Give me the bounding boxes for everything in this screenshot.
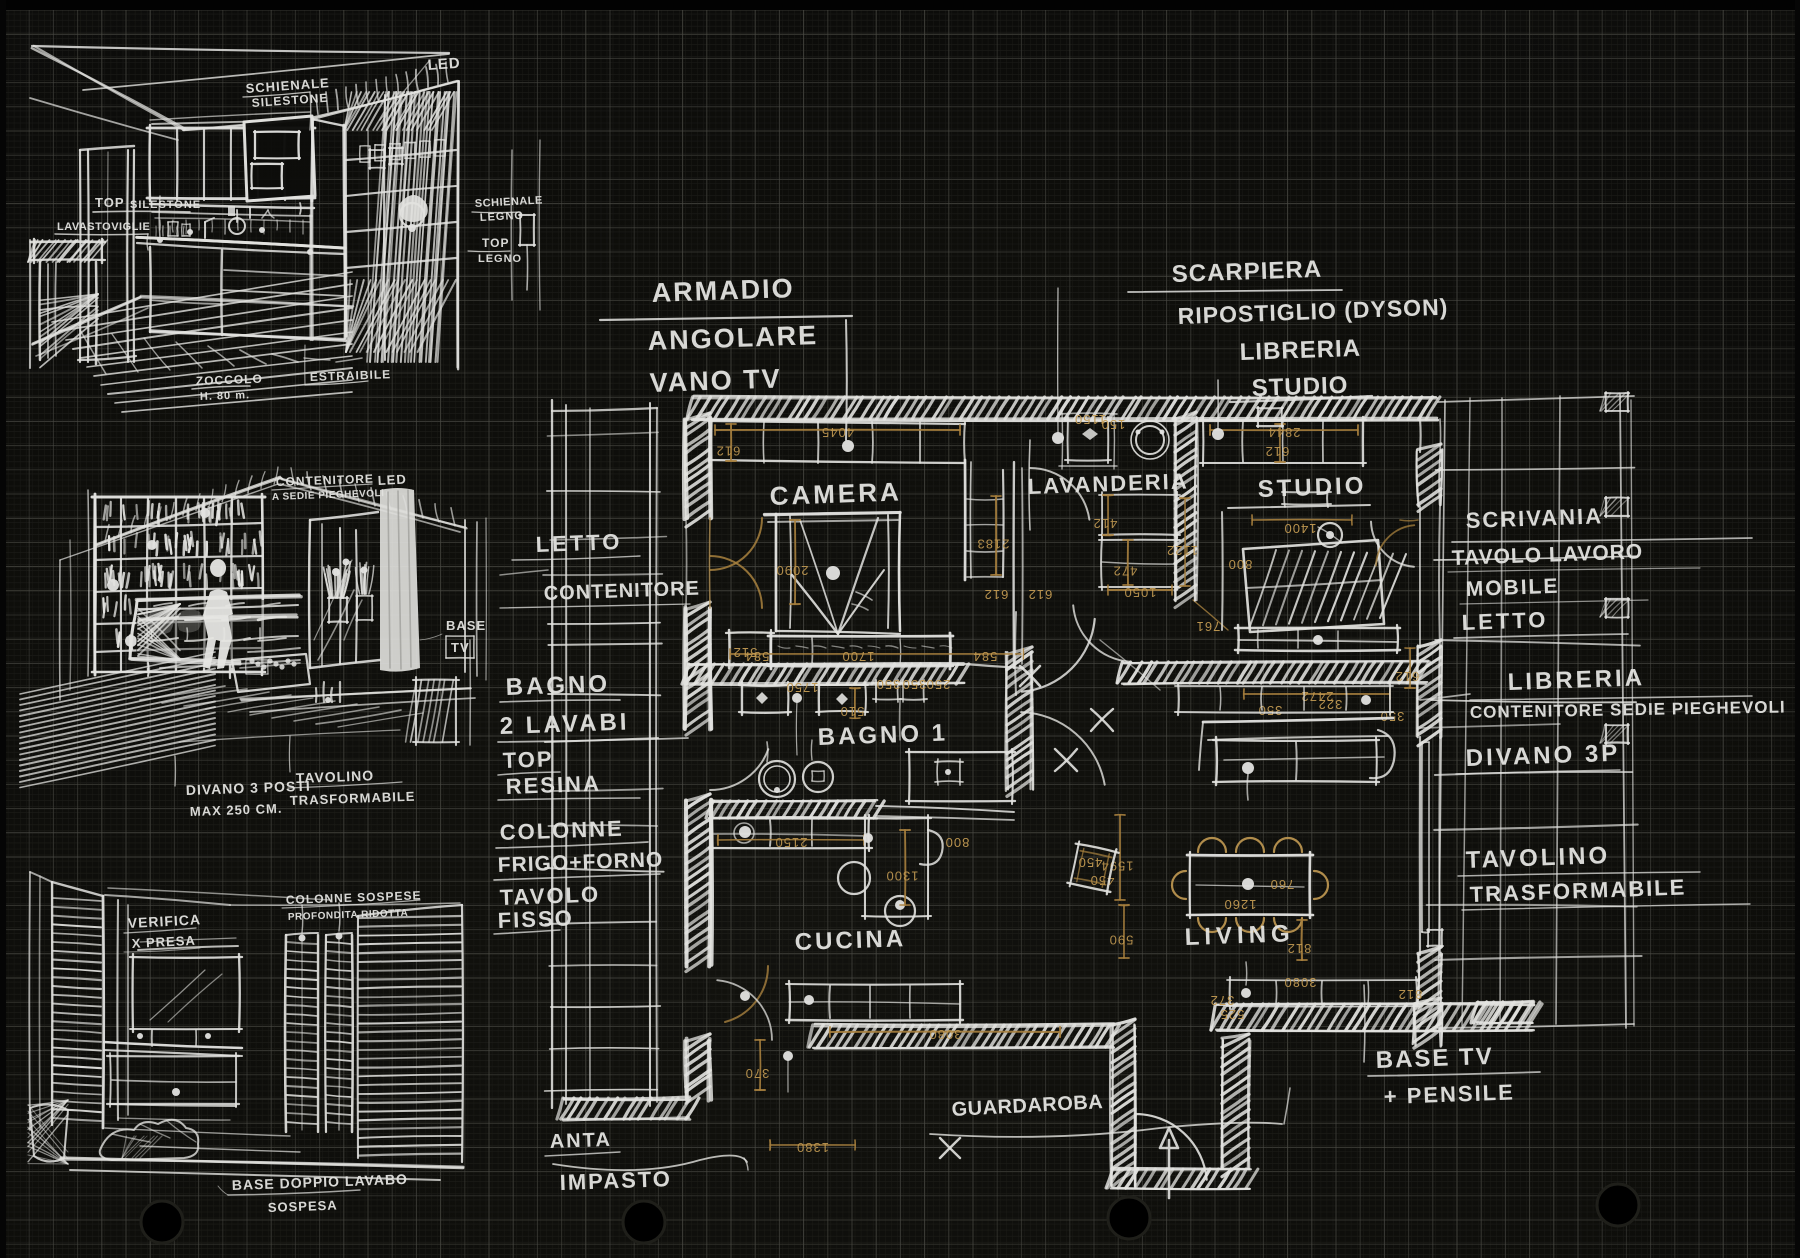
svg-text:612: 612 <box>1265 444 1290 459</box>
svg-text:LETTO: LETTO <box>535 529 623 557</box>
svg-text:612: 612 <box>1395 669 1420 684</box>
svg-text:3080: 3080 <box>1284 975 1317 990</box>
svg-text:350: 350 <box>876 677 901 692</box>
svg-text:ESTRAIBILE: ESTRAIBILE <box>310 367 392 384</box>
svg-text:590: 590 <box>1109 933 1134 948</box>
svg-text:760: 760 <box>1270 877 1295 892</box>
svg-text:812: 812 <box>1398 987 1423 1002</box>
svg-text:2183: 2183 <box>977 537 1010 552</box>
svg-text:BASE: BASE <box>446 618 486 633</box>
svg-text:350: 350 <box>902 677 927 692</box>
svg-text:BAGNO 1: BAGNO 1 <box>817 719 948 751</box>
svg-text:ANGOLARE: ANGOLARE <box>647 320 818 356</box>
svg-text:3080: 3080 <box>929 1027 962 1042</box>
svg-text:1750: 1750 <box>786 680 819 695</box>
svg-text:TAVOLINO: TAVOLINO <box>296 767 375 786</box>
svg-text:2844: 2844 <box>1268 425 1301 440</box>
svg-text:372: 372 <box>1210 993 1235 1008</box>
svg-text:2090: 2090 <box>776 563 809 578</box>
svg-text:ARMADIO: ARMADIO <box>651 273 795 308</box>
svg-text:DIVANO 3P: DIVANO 3P <box>1465 740 1620 772</box>
svg-text:COLONNE: COLONNE <box>499 816 624 845</box>
svg-text:1260: 1260 <box>1224 897 1257 912</box>
svg-text:LAVASTOVIGLIE: LAVASTOVIGLIE <box>57 221 150 233</box>
svg-text:SCARPIERA: SCARPIERA <box>1171 256 1322 288</box>
svg-text:1122: 1122 <box>1166 543 1198 558</box>
svg-text:510: 510 <box>840 704 865 719</box>
svg-text:250: 250 <box>926 677 951 692</box>
svg-text:472: 472 <box>1113 564 1138 579</box>
svg-text:LEGNO: LEGNO <box>478 253 522 265</box>
svg-text:STUDIO: STUDIO <box>1257 472 1367 503</box>
svg-text:SCRIVANIA: SCRIVANIA <box>1465 503 1603 533</box>
svg-text:612: 612 <box>716 444 741 459</box>
svg-text:761: 761 <box>1196 619 1221 634</box>
svg-text:370: 370 <box>745 1066 770 1081</box>
svg-text:1380: 1380 <box>796 1140 829 1155</box>
svg-text:322: 322 <box>1318 697 1343 712</box>
svg-text:800: 800 <box>1228 557 1253 572</box>
svg-text:1050: 1050 <box>1124 585 1157 600</box>
svg-text:CAMERA: CAMERA <box>769 476 902 511</box>
svg-text:CUCINA: CUCINA <box>794 925 906 956</box>
svg-text:RESINA: RESINA <box>505 771 601 799</box>
svg-text:H. 80 m.: H. 80 m. <box>200 389 251 403</box>
svg-text:812: 812 <box>1287 941 1312 956</box>
svg-text:TAVOLINO: TAVOLINO <box>1465 842 1610 874</box>
svg-text:LIBRERIA: LIBRERIA <box>1507 664 1645 696</box>
svg-text:525: 525 <box>1220 1007 1245 1022</box>
svg-text:LED: LED <box>427 55 461 74</box>
svg-text:612: 612 <box>984 587 1009 602</box>
svg-text:SILESTONE: SILESTONE <box>130 199 201 211</box>
svg-text:800: 800 <box>945 835 970 850</box>
svg-text:1150: 1150 <box>1074 412 1106 427</box>
svg-text:LIVING: LIVING <box>1184 920 1295 951</box>
svg-text:+ PENSILE: + PENSILE <box>1383 1079 1515 1109</box>
svg-text:BAGNO: BAGNO <box>505 670 610 701</box>
svg-text:1700: 1700 <box>842 649 875 664</box>
svg-text:TOP: TOP <box>482 236 509 250</box>
svg-text:FISSO: FISSO <box>497 905 574 933</box>
svg-text:LETTO: LETTO <box>1461 607 1549 635</box>
svg-text:2 LAVABI: 2 LAVABI <box>499 708 630 740</box>
svg-text:TOP: TOP <box>502 746 554 773</box>
svg-text:1400: 1400 <box>1284 521 1317 536</box>
svg-text:MOBILE: MOBILE <box>1465 575 1559 601</box>
svg-text:TOP: TOP <box>95 195 125 210</box>
svg-text:LIBRERIA: LIBRERIA <box>1239 335 1361 366</box>
svg-text:412: 412 <box>1093 516 1118 531</box>
svg-text:LED: LED <box>377 471 407 487</box>
svg-text:612: 612 <box>1028 587 1053 602</box>
svg-text:512: 512 <box>733 645 758 660</box>
svg-text:BASE TV: BASE TV <box>1375 1043 1494 1074</box>
svg-text:4045: 4045 <box>821 425 854 440</box>
svg-text:SOSPESA: SOSPESA <box>268 1198 338 1215</box>
svg-text:VANO TV: VANO TV <box>649 363 782 398</box>
svg-text:ANTA: ANTA <box>549 1129 612 1153</box>
svg-text:584: 584 <box>973 649 998 664</box>
svg-text:2150: 2150 <box>775 835 808 850</box>
svg-text:TV: TV <box>451 640 470 655</box>
svg-text:1300: 1300 <box>886 869 919 884</box>
